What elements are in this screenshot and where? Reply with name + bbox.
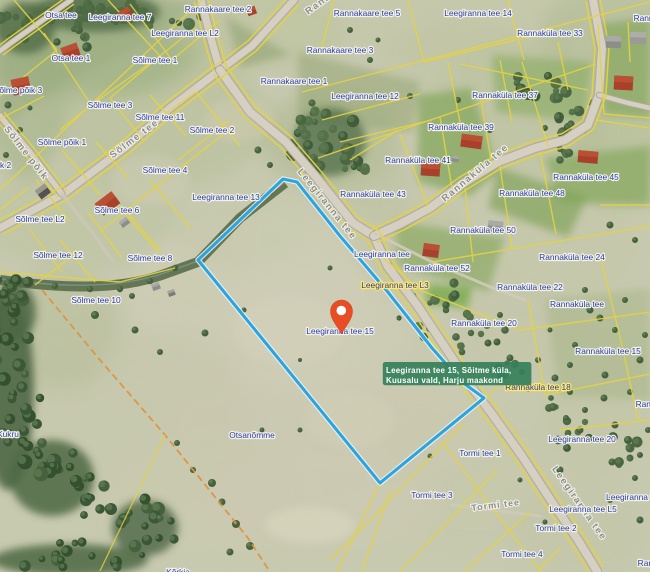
svg-text:Tormi tee 4: Tormi tee 4 bbox=[501, 549, 543, 559]
svg-text:Rannaküla tee 45: Rannaküla tee 45 bbox=[553, 172, 619, 182]
svg-text:Rannakaare tee 3: Rannakaare tee 3 bbox=[307, 45, 374, 55]
svg-text:Sõlme tee 1: Sõlme tee 1 bbox=[133, 55, 178, 65]
svg-text:Kuusalu vald, Harju maakond: Kuusalu vald, Harju maakond bbox=[386, 376, 503, 385]
svg-text:Rannaküla tee 48: Rannaküla tee 48 bbox=[499, 188, 565, 198]
svg-text:Otsa tee: Otsa tee bbox=[45, 10, 77, 20]
svg-text:Leegiranna tee 13: Leegiranna tee 13 bbox=[192, 192, 260, 202]
svg-text:Otsa tee 1: Otsa tee 1 bbox=[52, 53, 91, 63]
svg-text:Leegiranna tee 14: Leegiranna tee 14 bbox=[444, 8, 512, 18]
svg-text:Leegiranna tee L2: Leegiranna tee L2 bbox=[151, 28, 219, 38]
svg-text:Rannakaare tee 5: Rannakaare tee 5 bbox=[334, 8, 401, 18]
svg-text:Sõlme tee 12: Sõlme tee 12 bbox=[33, 250, 83, 260]
svg-text:Rannaküla tee 41: Rannaküla tee 41 bbox=[385, 155, 451, 165]
svg-text:Kõrkja: Kõrkja bbox=[166, 567, 190, 572]
svg-text:Ranna: Ranna bbox=[638, 558, 650, 568]
svg-text:Leegiranna tee 15, Sõitme küla: Leegiranna tee 15, Sõitme küla, bbox=[386, 366, 511, 375]
svg-text:Tormi tee 1: Tormi tee 1 bbox=[459, 448, 501, 458]
svg-text:Rannaküla tee 33: Rannaküla tee 33 bbox=[517, 28, 583, 38]
svg-text:Sõlme tee 2: Sõlme tee 2 bbox=[190, 125, 235, 135]
svg-text:Sõlme tee L2: Sõlme tee L2 bbox=[15, 214, 65, 224]
svg-text:Leegiranna tee: Leegiranna tee bbox=[354, 249, 410, 259]
svg-text:Tormi tee 2: Tormi tee 2 bbox=[535, 523, 577, 533]
svg-text:Sõlme tee 11: Sõlme tee 11 bbox=[136, 112, 185, 122]
svg-text:põik 2: põik 2 bbox=[0, 160, 12, 170]
svg-text:Rannaküla tee 50: Rannaküla tee 50 bbox=[450, 225, 516, 235]
svg-text:Leegiranna tee 20: Leegiranna tee 20 bbox=[548, 434, 616, 444]
svg-text:Leegiranna tee L3: Leegiranna tee L3 bbox=[361, 280, 429, 290]
svg-text:Rannaküla tee 43: Rannaküla tee 43 bbox=[340, 189, 406, 199]
svg-text:Leegiranna tee: Leegiranna tee bbox=[606, 492, 650, 502]
svg-text:Rannakaare tee 2: Rannakaare tee 2 bbox=[185, 4, 252, 14]
svg-text:Sõlme tee 8: Sõlme tee 8 bbox=[128, 253, 173, 263]
svg-text:Rannaküla tee 15: Rannaküla tee 15 bbox=[575, 346, 641, 356]
svg-text:Rannaküla tee 37: Rannaküla tee 37 bbox=[472, 90, 538, 100]
svg-text:Otsanõmme: Otsanõmme bbox=[229, 430, 275, 440]
svg-text:Rannak: Rannak bbox=[636, 399, 650, 409]
svg-text:Tormi tee 3: Tormi tee 3 bbox=[411, 490, 453, 500]
svg-text:Rannaküla tee 24: Rannaküla tee 24 bbox=[539, 252, 605, 262]
svg-text:Rannaküla tee 39: Rannaküla tee 39 bbox=[428, 122, 494, 132]
svg-text:Sõlme põik 3: Sõlme põik 3 bbox=[0, 85, 43, 95]
svg-text:Leegiranna tee 7: Leegiranna tee 7 bbox=[89, 12, 152, 22]
svg-text:Rannak: Rannak bbox=[634, 13, 650, 23]
svg-text:Leegiranna tee L5: Leegiranna tee L5 bbox=[549, 504, 617, 514]
svg-text:Rannaküla tee 52: Rannaküla tee 52 bbox=[404, 263, 470, 273]
svg-text:Kukru: Kukru bbox=[0, 429, 19, 439]
svg-text:Rannakaare tee 1: Rannakaare tee 1 bbox=[261, 76, 328, 86]
svg-text:Sõlme tee 10: Sõlme tee 10 bbox=[71, 295, 121, 305]
svg-text:Rannaküla tee 22: Rannaküla tee 22 bbox=[497, 282, 563, 292]
svg-text:Sõlme tee 3: Sõlme tee 3 bbox=[88, 100, 133, 110]
svg-text:Sõlme tee 4: Sõlme tee 4 bbox=[143, 165, 188, 175]
svg-text:Rannaküla tee: Rannaküla tee bbox=[550, 299, 604, 309]
svg-text:Sõlme põik 1: Sõlme põik 1 bbox=[38, 137, 87, 147]
svg-text:Sõlme tee 6: Sõlme tee 6 bbox=[95, 205, 140, 215]
svg-text:Leegiranna tee 12: Leegiranna tee 12 bbox=[331, 91, 399, 101]
svg-text:Rannaküla tee 20: Rannaküla tee 20 bbox=[451, 318, 517, 328]
